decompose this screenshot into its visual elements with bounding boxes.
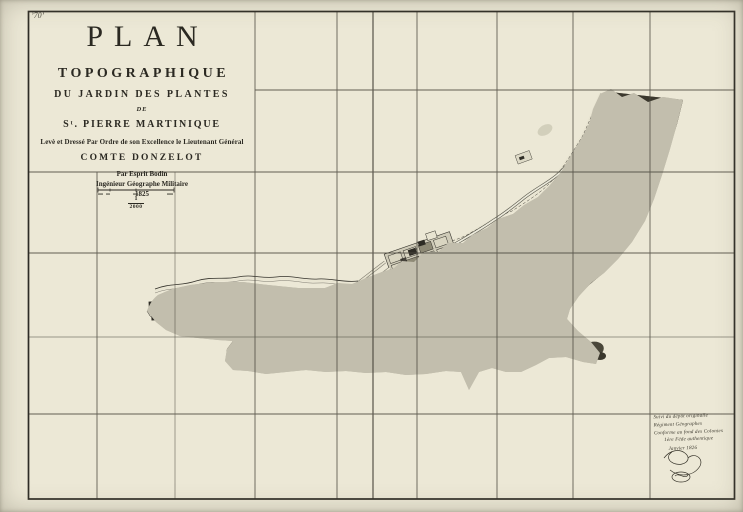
title-line-of: DU JARDIN DES PLANTES: [28, 90, 256, 100]
title-dedicatee: COMTE DONZELOT: [28, 154, 256, 164]
scale-numerator: 1: [97, 196, 175, 202]
title-author-role: Ingénieur Géographe Militaire: [28, 181, 256, 188]
scale-fraction: 1 2000: [97, 196, 175, 211]
title-author: Par Esprit Bodin: [28, 171, 256, 178]
map-sheet: ’70’ PLAN TOPOGRAPHIQUE DU JARDIN DES PL…: [0, 0, 743, 512]
title-line-de: DE: [28, 107, 256, 114]
title-dedication: Levè et Dressé Par Ordre de son Excellen…: [28, 139, 256, 146]
manuscript-annotation: Suivi du dépôt originalle Régiment Géogr…: [653, 412, 734, 455]
title-place: Sᵗ. PIERRE MARTINIQUE: [28, 120, 256, 130]
map-title: PLAN: [28, 22, 256, 52]
title-block: PLAN TOPOGRAPHIQUE DU JARDIN DES PLANTES…: [28, 13, 256, 198]
scale-denominator: 2000: [97, 205, 175, 211]
map-subtitle: TOPOGRAPHIQUE: [28, 67, 256, 81]
signature-paraph: [664, 451, 701, 482]
